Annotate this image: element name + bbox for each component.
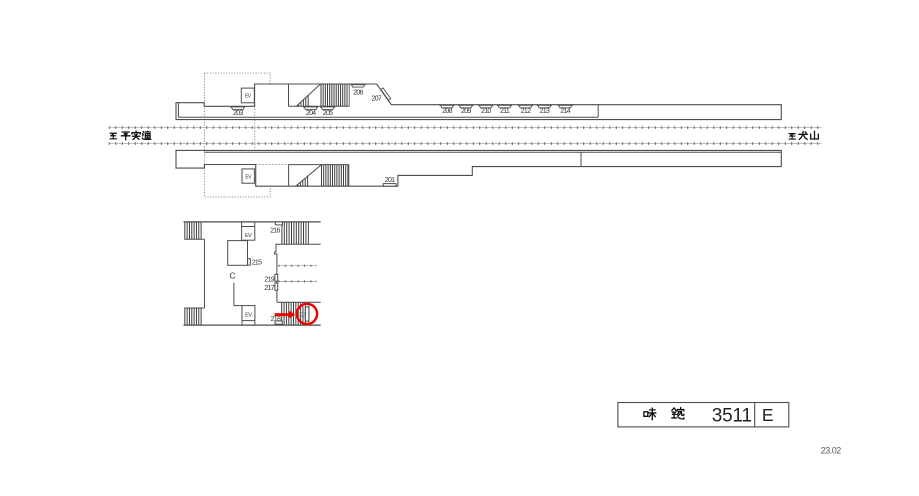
svg-text:214: 214: [560, 108, 570, 115]
svg-text:213: 213: [540, 108, 550, 115]
svg-text:219: 219: [264, 276, 274, 283]
svg-text:216: 216: [270, 227, 280, 234]
svg-text:210: 210: [481, 108, 491, 115]
svg-text:208: 208: [442, 108, 452, 115]
svg-text:209: 209: [461, 108, 471, 115]
svg-text:201: 201: [385, 177, 395, 184]
svg-text:205: 205: [323, 110, 333, 117]
svg-text:217: 217: [264, 285, 274, 292]
svg-text:215: 215: [252, 260, 262, 267]
svg-text:212: 212: [521, 108, 531, 115]
svg-text:203: 203: [233, 110, 243, 117]
svg-text:E: E: [762, 405, 774, 425]
svg-text:207: 207: [372, 96, 382, 103]
svg-text:23.02: 23.02: [821, 446, 842, 456]
svg-text:202: 202: [299, 312, 306, 318]
svg-text:C: C: [229, 270, 235, 280]
svg-text:EV: EV: [245, 233, 252, 239]
svg-text:EV: EV: [245, 313, 252, 319]
svg-text:206: 206: [353, 89, 363, 96]
svg-text:3511: 3511: [712, 405, 752, 426]
svg-text:204: 204: [306, 110, 316, 117]
svg-text:211: 211: [500, 108, 510, 115]
